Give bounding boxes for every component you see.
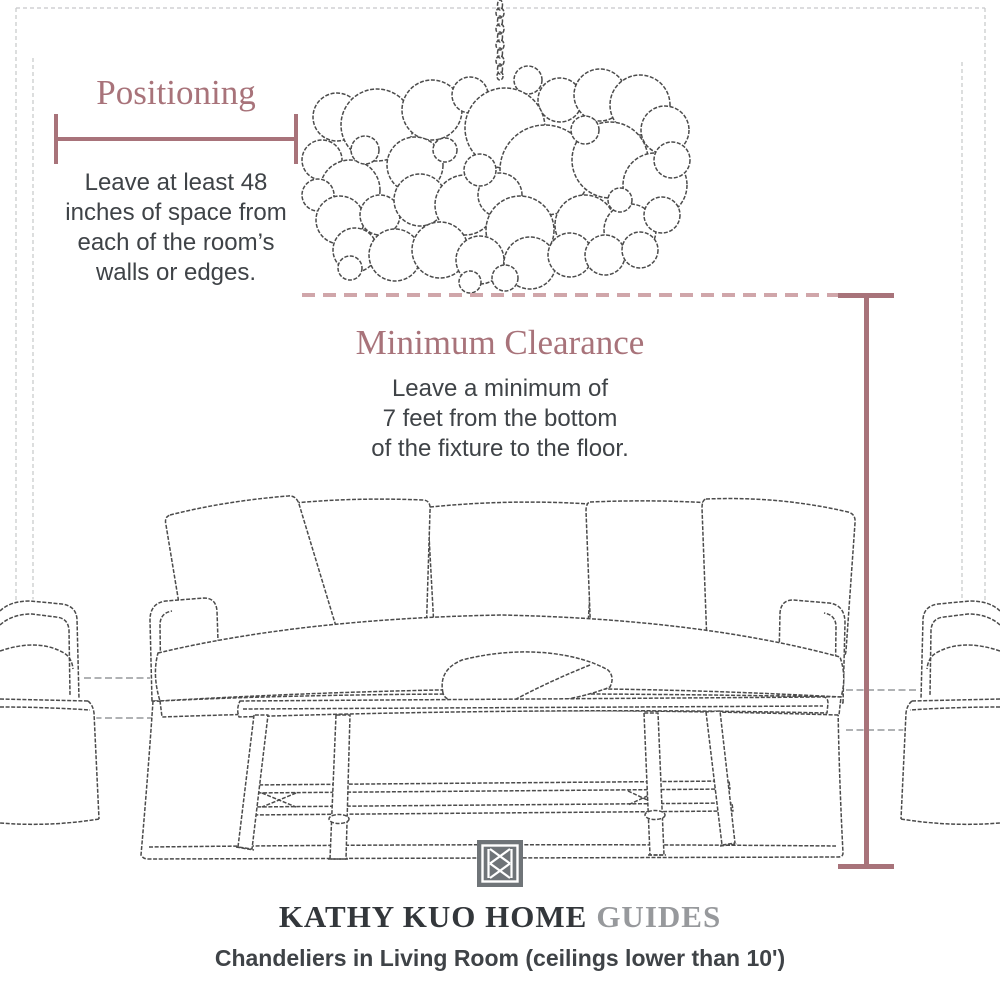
clearance-title: Minimum Clearance [290,324,710,363]
bubble-chandelier-sketch [295,0,705,300]
clearance-dashed-line [302,293,843,297]
measure-end-tick [838,864,894,869]
bubble-cluster [302,66,690,293]
7-foot-floor-clearance-measure [838,293,894,869]
armchair-right-sketch [900,599,1000,826]
positioning-annotation: Positioning Leave at least 48 inches of … [40,74,312,288]
measure-bar [864,295,869,867]
clearance-text: Leave a minimum of 7 feet from the botto… [290,374,710,464]
clearance-annotation: Minimum Clearance Leave a minimum of 7 f… [290,324,710,464]
kathy-kuo-home-logo [477,840,523,887]
48-inch-wall-offset-measure [40,114,312,164]
armchair-left-sketch [0,599,100,826]
positioning-title: Positioning [40,74,312,113]
positioning-text: Leave at least 48 inches of space from e… [40,168,312,288]
infographic-canvas: Positioning Leave at least 48 inches of … [0,0,1000,1000]
brand-suffix: GUIDES [596,899,721,934]
measure-bar [56,137,297,141]
brand-title: KATHY KUO HOMEGUIDES [0,899,1000,935]
chain-icon [496,0,504,80]
measure-end-tick [294,114,298,164]
guide-subtitle: Chandeliers in Living Room (ceilings low… [0,945,1000,972]
brand-name: KATHY KUO HOME [279,899,588,934]
